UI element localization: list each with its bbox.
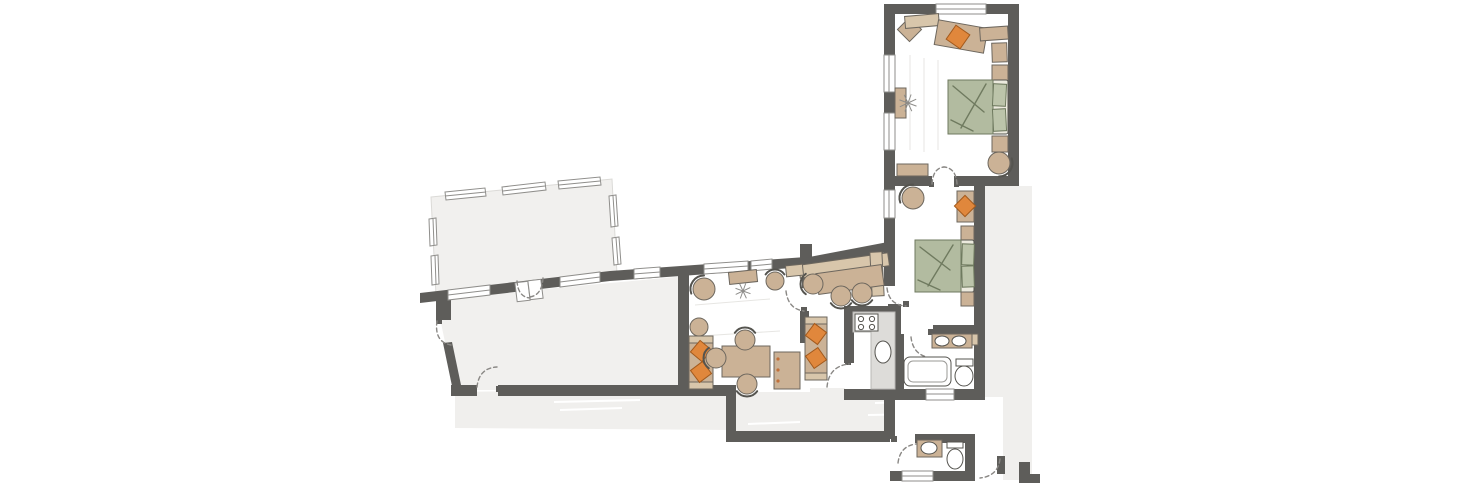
east-courtyard bbox=[983, 186, 1032, 397]
cabinet-handle bbox=[776, 357, 779, 360]
chair bbox=[735, 330, 755, 350]
wall-westroom-stub bbox=[436, 298, 451, 320]
chair bbox=[902, 187, 924, 209]
wall-b2-east bbox=[974, 180, 985, 397]
cabinet-handle bbox=[776, 368, 779, 371]
console-table bbox=[728, 270, 757, 285]
chair bbox=[737, 374, 757, 394]
bed-pillow bbox=[992, 109, 1006, 132]
floor-plan-canvas bbox=[0, 0, 1462, 492]
toilet-bowl bbox=[947, 449, 963, 469]
toilet-bowl bbox=[955, 366, 973, 386]
wall-b1-west-a bbox=[884, 4, 895, 55]
toilet-tank bbox=[947, 442, 963, 448]
step-line bbox=[893, 425, 958, 427]
kitchen-sink bbox=[875, 341, 891, 363]
bed-pillow bbox=[962, 244, 975, 265]
shelf bbox=[785, 264, 803, 277]
bed-pillow bbox=[992, 84, 1006, 107]
chair bbox=[766, 272, 784, 290]
chair bbox=[706, 348, 726, 368]
chair bbox=[831, 286, 851, 306]
chair bbox=[803, 274, 823, 294]
sofa-armrest bbox=[805, 373, 827, 380]
nightstand bbox=[961, 292, 974, 306]
floor-plan-page bbox=[0, 0, 1462, 492]
sofa-armrest bbox=[689, 382, 713, 389]
door-hinge bbox=[496, 386, 502, 392]
apartment-floor-plan bbox=[0, 0, 1462, 492]
wall-terrace-south bbox=[726, 431, 890, 442]
wall-south bbox=[844, 389, 985, 400]
vanity-side bbox=[972, 334, 978, 345]
wall-b1-west-b bbox=[884, 92, 895, 113]
bed-pillow bbox=[962, 266, 975, 287]
bench bbox=[897, 164, 928, 176]
door-hinge bbox=[891, 436, 897, 442]
wall-westroom-south-w bbox=[451, 385, 477, 396]
wall-entry-stub bbox=[997, 456, 1005, 474]
wall-kitchen-bath-divider bbox=[895, 334, 904, 392]
nightstand bbox=[992, 136, 1008, 152]
tall-unit bbox=[992, 43, 1008, 63]
wall-study-west bbox=[678, 272, 689, 392]
study-table bbox=[722, 346, 770, 377]
sofa-armrest bbox=[805, 317, 827, 324]
dressing-console bbox=[895, 88, 906, 118]
door-hinge bbox=[801, 307, 807, 313]
bathroom-sink bbox=[952, 336, 966, 346]
nightstand bbox=[992, 65, 1008, 81]
wall-entry-corner-h bbox=[1019, 474, 1040, 483]
wall-b1-south-e bbox=[954, 176, 1019, 186]
chair bbox=[693, 278, 715, 300]
side-table-round bbox=[690, 318, 708, 336]
bathroom-sink bbox=[935, 336, 949, 346]
wc-sink bbox=[921, 442, 937, 454]
chair bbox=[852, 283, 872, 303]
shelf bbox=[905, 14, 940, 29]
cabinet-handle bbox=[776, 379, 779, 382]
cabinet bbox=[980, 26, 1009, 41]
chair bbox=[988, 152, 1010, 174]
toilet-tank bbox=[956, 359, 973, 366]
